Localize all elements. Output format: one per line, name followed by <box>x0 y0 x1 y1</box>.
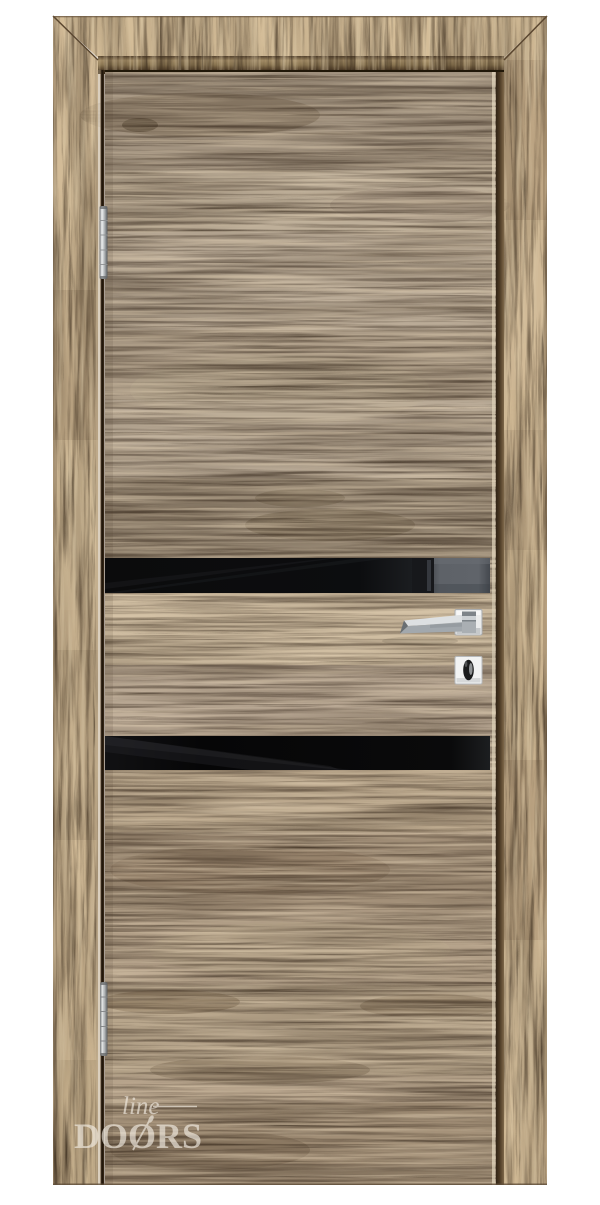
svg-text:DOORS: DOORS <box>74 1116 202 1156</box>
